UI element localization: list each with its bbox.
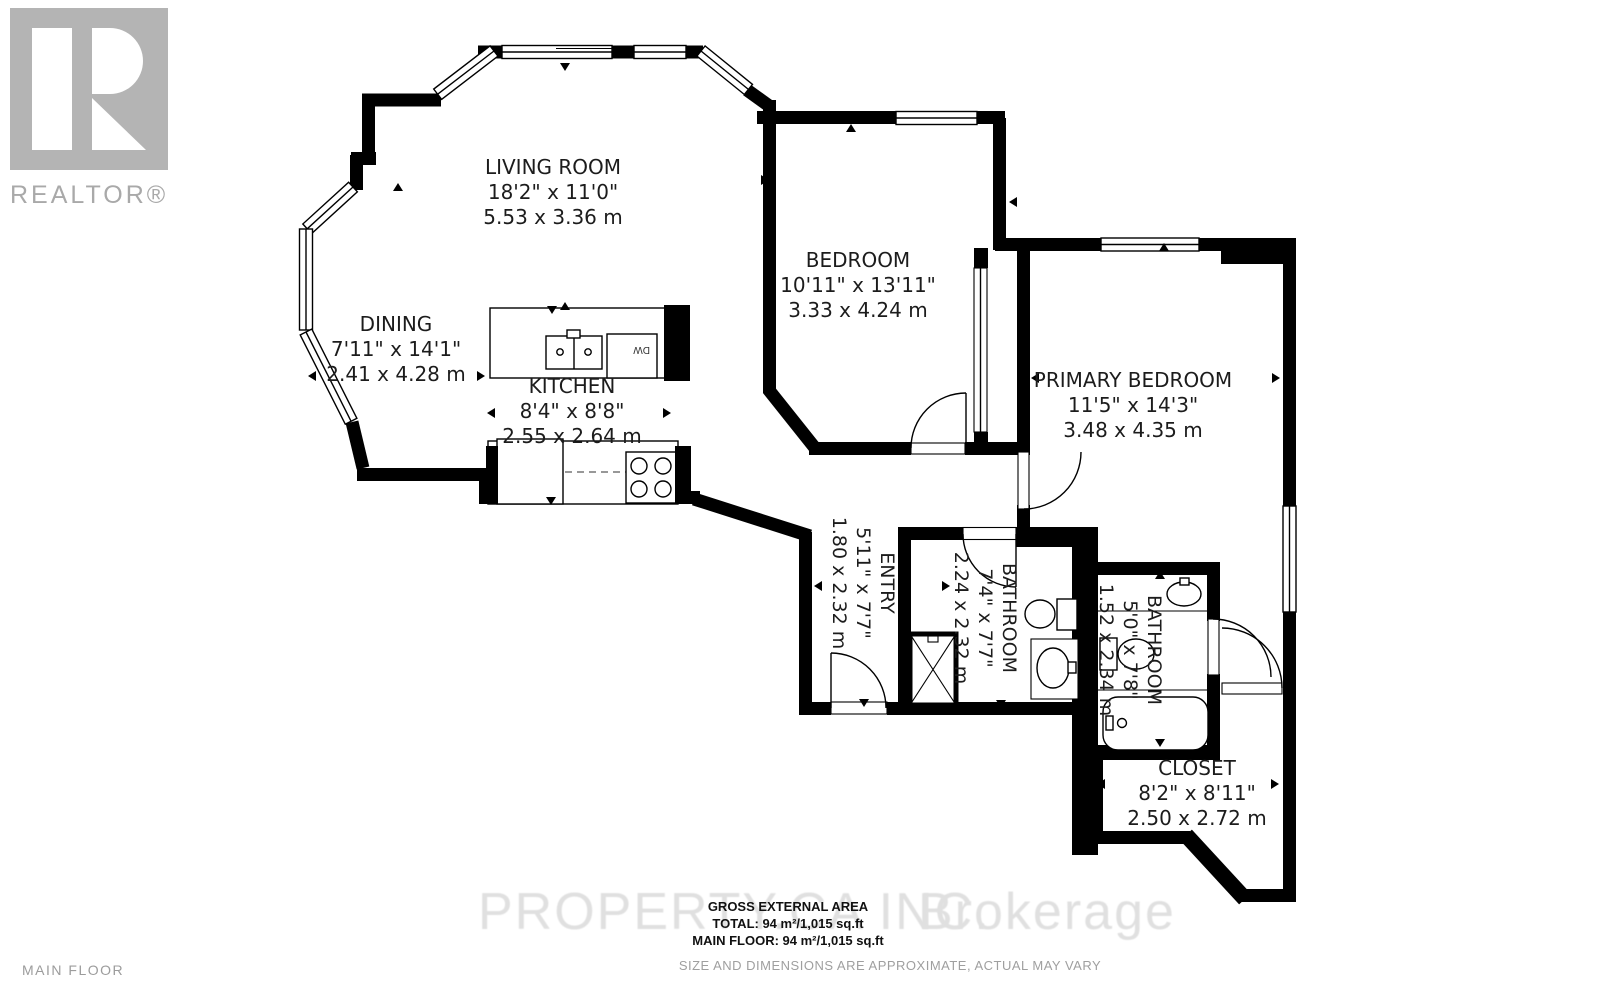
window-dining-upper — [303, 182, 358, 233]
window-right-wall — [1283, 506, 1296, 612]
room-dim-metric: 2.24 x 2.32 m — [949, 552, 973, 684]
window-primary — [1101, 238, 1199, 251]
room-name: DINING — [326, 312, 465, 337]
room-label-primary-bedroom: PRIMARY BEDROOM 11'5" x 14'3" 3.48 x 4.3… — [1034, 368, 1232, 443]
counter-wall-stub-right — [675, 446, 691, 504]
door-ensuite-bathroom — [1208, 619, 1271, 677]
room-dim-metric: 2.55 x 2.64 m — [502, 424, 641, 449]
window-dining-mid — [300, 229, 313, 330]
room-label-closet: CLOSET 8'2" x 8'11" 2.50 x 2.72 m — [1127, 756, 1266, 831]
floor-plan-drawing: DW — [0, 0, 1600, 1000]
wall-chunk — [1221, 251, 1296, 264]
room-name: ENTRY — [875, 517, 899, 649]
room-label-ensuite-bathroom: BATHROOM 5'0" x 7'8" 1.52 x 2.34 m — [1094, 584, 1166, 716]
room-label-kitchen: KITCHEN 8'4" x 8'8" 2.55 x 2.64 m — [502, 374, 641, 449]
door-closet — [1222, 628, 1282, 694]
room-label-bedroom: BEDROOM 10'11" x 13'11" 3.33 x 4.24 m — [780, 248, 936, 323]
watermark-brokerage: Brokerage — [918, 882, 1176, 942]
floor-plan-page: REALTOR® — [0, 0, 1600, 1000]
door-entry — [831, 653, 887, 714]
room-name: PRIMARY BEDROOM — [1034, 368, 1232, 393]
room-dim-metric: 3.33 x 4.24 m — [780, 298, 936, 323]
room-dim-metric: 1.52 x 2.34 m — [1094, 584, 1118, 716]
main-floor-area: MAIN FLOOR: 94 m²/1,015 sq.ft — [692, 932, 883, 949]
room-label-dining: DINING 7'11" x 14'1" 2.41 x 4.28 m — [326, 312, 465, 387]
window-bay-right — [697, 46, 753, 94]
floor-name: MAIN FLOOR — [22, 962, 124, 978]
room-label-bathroom: BATHROOM 7'4" x 7'7" 2.24 x 2.32 m — [949, 552, 1021, 684]
window-bay-left — [434, 46, 498, 100]
counter-wall-stub-left — [486, 446, 498, 504]
room-name: LIVING ROOM — [483, 155, 622, 180]
dishwasher-label: DW — [633, 344, 650, 355]
room-name: CLOSET — [1127, 756, 1266, 781]
room-dim-imperial: 18'2" x 11'0" — [483, 180, 622, 205]
room-dim-metric: 2.41 x 4.28 m — [326, 362, 465, 387]
room-name: BATHROOM — [1142, 584, 1166, 716]
door-primary-bedroom — [1018, 452, 1081, 509]
room-label-living-room: LIVING ROOM 18'2" x 11'0" 5.53 x 3.36 m — [483, 155, 622, 230]
sink-ensuite — [1167, 578, 1201, 606]
room-dim-imperial: 8'4" x 8'8" — [502, 399, 641, 424]
room-dim-imperial: 7'11" x 14'1" — [326, 337, 465, 362]
sink-main-bath — [1031, 639, 1078, 699]
realtor-label: REALTOR® — [10, 181, 170, 210]
room-dim-imperial: 7'4" x 7'7" — [973, 552, 997, 684]
room-name: BATHROOM — [997, 552, 1021, 684]
area-summary: GROSS EXTERNAL AREA TOTAL: 94 m²/1,015 s… — [692, 898, 883, 949]
room-name: BEDROOM — [780, 248, 936, 273]
stove — [626, 452, 676, 503]
island-wall-stub — [664, 305, 690, 381]
room-label-entry: ENTRY 5'11" x 7'7" 1.80 x 2.32 m — [827, 517, 899, 649]
room-dim-metric: 2.50 x 2.72 m — [1127, 806, 1266, 831]
total-area: TOTAL: 94 m²/1,015 sq.ft — [692, 915, 883, 932]
realtor-r-icon — [10, 8, 168, 170]
kitchen-sink — [546, 330, 602, 369]
room-dim-metric: 3.48 x 4.35 m — [1034, 418, 1232, 443]
room-dim-imperial: 5'0" x 7'8" — [1118, 584, 1142, 716]
room-dim-imperial: 5'11" x 7'7" — [851, 517, 875, 649]
window-bedroom — [896, 112, 977, 125]
dishwasher: DW — [607, 334, 657, 378]
disclaimer: SIZE AND DIMENSIONS ARE APPROXIMATE, ACT… — [679, 958, 1101, 973]
room-dim-imperial: 8'2" x 8'11" — [1127, 781, 1266, 806]
gross-area-title: GROSS EXTERNAL AREA — [692, 898, 883, 915]
room-dim-imperial: 10'11" x 13'11" — [780, 273, 936, 298]
room-dim-metric: 5.53 x 3.36 m — [483, 205, 622, 230]
room-dim-imperial: 11'5" x 14'3" — [1034, 393, 1232, 418]
toilet-main-bath — [1025, 599, 1077, 630]
room-name: KITCHEN — [502, 374, 641, 399]
window-living-top — [502, 46, 686, 59]
room-dim-metric: 1.80 x 2.32 m — [827, 517, 851, 649]
realtor-logo: REALTOR® — [10, 8, 170, 210]
sliding-door-bedroom-closet — [974, 268, 987, 432]
door-bedroom — [911, 393, 966, 454]
